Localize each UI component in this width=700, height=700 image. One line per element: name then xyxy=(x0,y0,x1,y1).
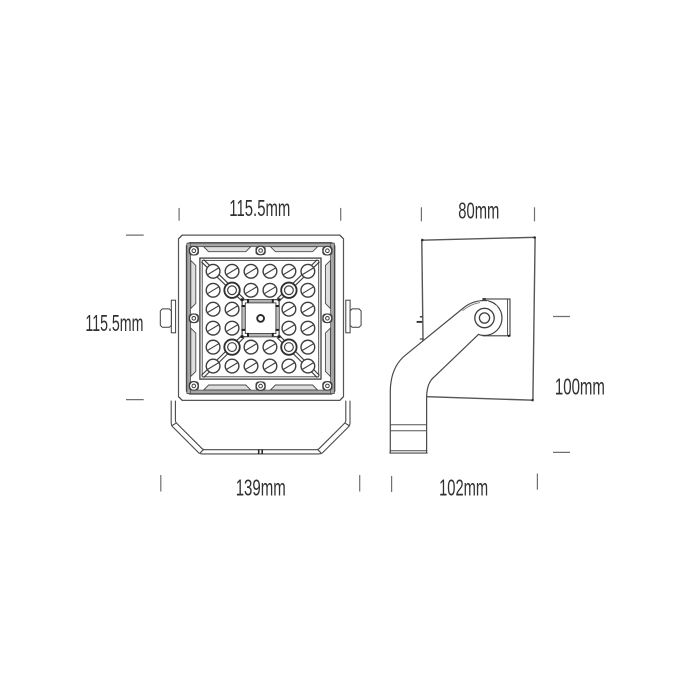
svg-text:80mm: 80mm xyxy=(458,197,499,223)
svg-text:100mm: 100mm xyxy=(555,374,605,400)
svg-text:115.5mm: 115.5mm xyxy=(85,310,143,336)
svg-text:139mm: 139mm xyxy=(236,475,286,501)
svg-text:102mm: 102mm xyxy=(439,475,488,501)
svg-text:115.5mm: 115.5mm xyxy=(229,195,290,221)
